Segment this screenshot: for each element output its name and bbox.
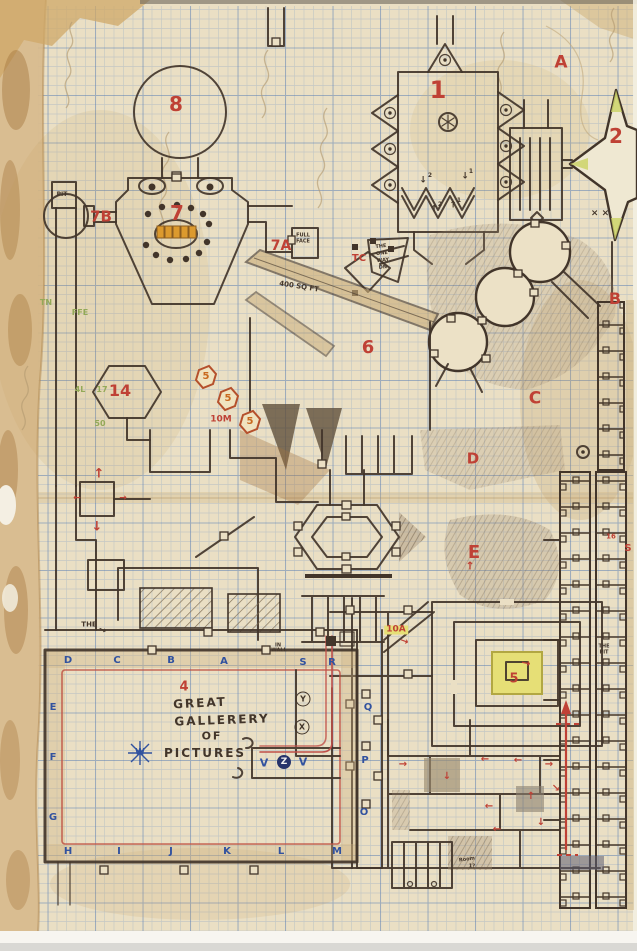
scan-edge: [0, 931, 637, 951]
teeth: [157, 226, 196, 238]
starburst: [128, 741, 152, 765]
dungeon-map-scan: 877B7A1412ABCDE6TC10M10A5555→4↑↓→←→↑→↓←←…: [0, 0, 637, 951]
map-drawing: [0, 0, 637, 951]
